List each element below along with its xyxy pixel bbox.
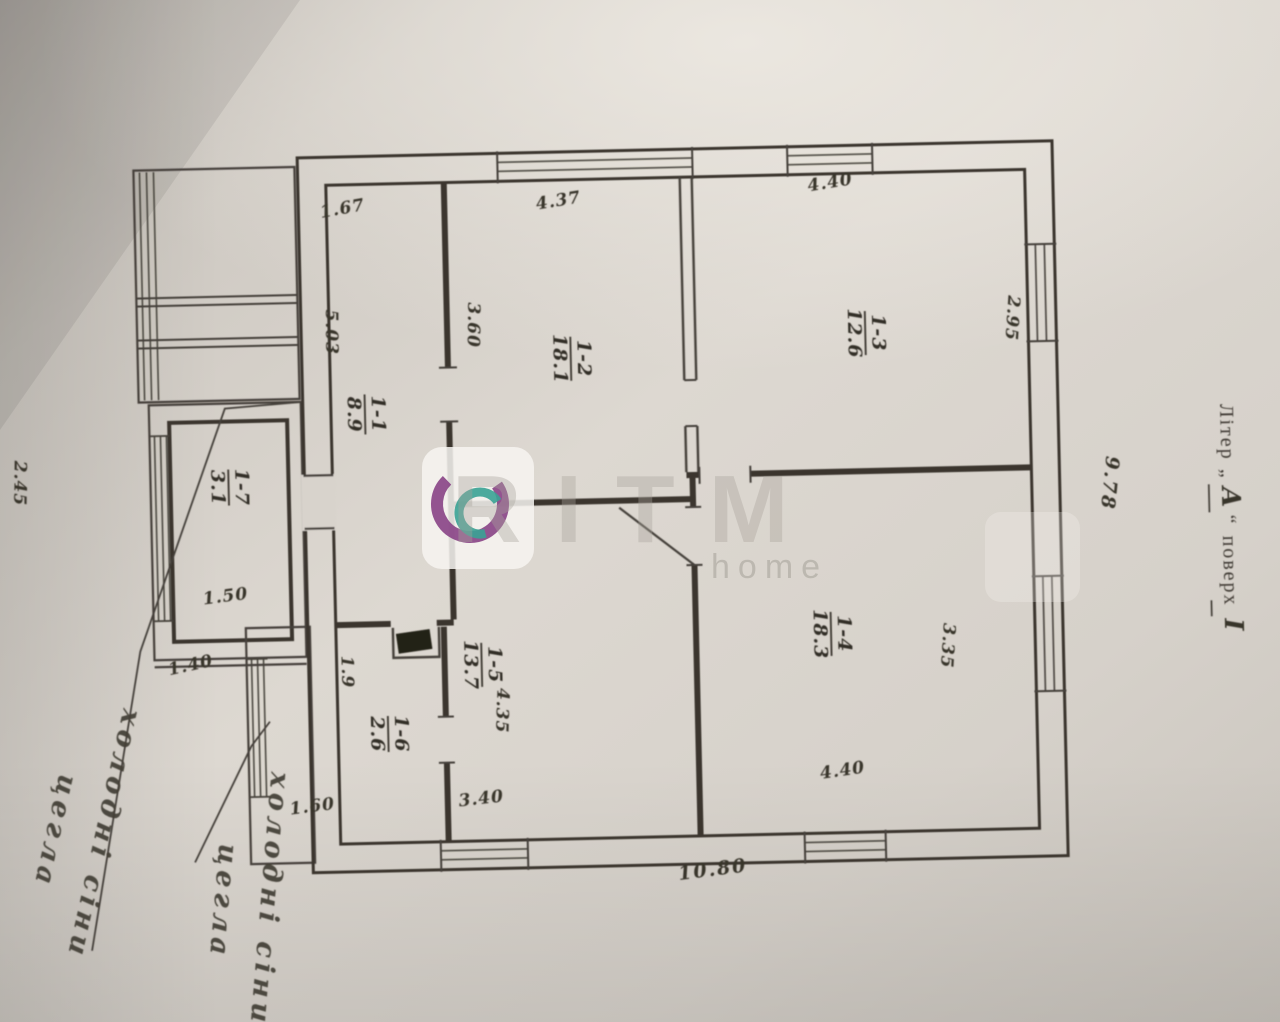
watermark-brand-text: RITM [452,456,823,563]
door-annex-to-house [301,474,336,531]
room-annex-area: 3.1 [206,470,229,507]
dim-room14-right: 3.35 [936,622,959,669]
floor-plan-photo: 1.67 5.03 4.37 3.60 4.40 2.95 4.40 3.35 … [0,0,1280,1022]
watermark-tile-faint [985,512,1080,602]
caption-floor-word: поверх [1218,535,1242,606]
room-1-1-number: 1-1 [367,395,390,433]
dim-room16-top: 1.9 [336,655,357,688]
caption-letter-underline [1209,484,1210,512]
room-1-5-area: 13.7 [459,640,482,691]
caption-floor-value: І [1218,617,1248,632]
watermark-sub-text: home [711,548,828,586]
caption-quote-close: “ [1217,514,1239,525]
dim-room15-left: 4.35 [491,688,512,734]
caption-liter-word: Літер [1215,404,1238,461]
caption-letter-value: А [1215,484,1246,508]
room-1-4-area: 18.3 [809,609,832,660]
room-1-3-area: 12.6 [843,308,866,359]
room-1-6-area: 2.6 [366,715,389,753]
dim-room12-left: 3.60 [463,302,484,348]
room-1-6-number: 1-6 [390,715,413,753]
dim-corridor-left: 5.03 [321,310,341,356]
room-1-1-area: 8.9 [343,395,366,433]
room-1-2-number: 1-2 [572,340,595,378]
dim-annex-left: 2.45 [9,460,30,507]
room-1-5-number: 1-5 [483,646,506,684]
room-1-3-number: 1-3 [867,314,890,352]
paper-bottom-shadow [0,760,1280,1022]
room-1-2-area: 18.1 [548,334,571,385]
room-annex-number: 1-7 [230,468,253,506]
caption-quote-open: „ [1216,468,1238,479]
room-1-4-number: 1-4 [833,615,856,653]
dim-room13-right: 2.95 [1001,294,1024,342]
